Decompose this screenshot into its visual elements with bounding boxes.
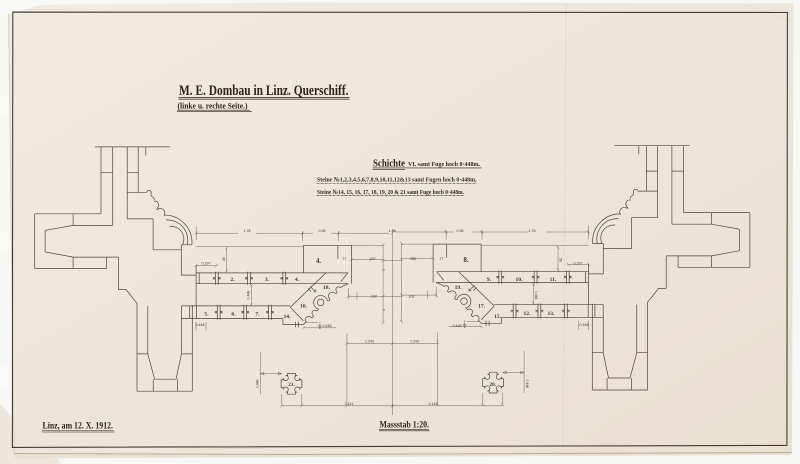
svg-text:1.243: 1.243 <box>365 339 374 343</box>
svg-text:7.: 7. <box>255 312 260 318</box>
svg-text:2.: 2. <box>230 277 235 283</box>
svg-text:2.141: 2.141 <box>429 402 438 406</box>
svg-text:18.: 18. <box>323 285 331 291</box>
svg-text:.102: .102 <box>369 257 376 261</box>
svg-text:1.243: 1.243 <box>410 339 419 343</box>
svg-text:.77: .77 <box>439 257 444 261</box>
svg-text:VI. samt Fuge hoch 0·448m.: VI. samt Fuge hoch 0·448m. <box>408 161 480 168</box>
svg-text:.56: .56 <box>559 257 563 262</box>
svg-text:14.: 14. <box>284 314 292 320</box>
svg-text:.56: .56 <box>222 257 226 262</box>
svg-text:4: 4 <box>382 309 386 311</box>
svg-text:0.448: 0.448 <box>196 323 205 327</box>
svg-text:15.: 15. <box>494 314 502 320</box>
svg-text:Linz, am 12. X. 1912.: Linz, am 12. X. 1912. <box>43 422 114 432</box>
svg-text:Steine №14, 15, 16, 17, 18, 19: Steine №14, 15, 16, 17, 18, 19, 20 & 21 … <box>317 189 464 196</box>
svg-text:Steine №1,2,3,4,5,6,7,8,9,10,1: Steine №1,2,3,4,5,6,7,8,9,10,11,12&13 sa… <box>317 177 477 184</box>
svg-text:17.: 17. <box>478 304 486 310</box>
svg-text:.77: .77 <box>342 257 347 261</box>
svg-text:19.: 19. <box>455 285 463 291</box>
svg-text:12.: 12. <box>524 311 532 317</box>
svg-text:20.: 20. <box>490 382 497 388</box>
svg-text:0.448: 0.448 <box>256 379 260 388</box>
svg-text:0.448: 0.448 <box>323 324 332 328</box>
svg-text:13.: 13. <box>548 311 556 317</box>
svg-text:10.: 10. <box>516 277 524 283</box>
svg-text:M. E. Dombau in Linz. Querschi: M. E. Dombau in Linz. Querschiff. <box>179 83 349 99</box>
svg-text:5.: 5. <box>204 312 209 318</box>
svg-text:.102: .102 <box>408 295 415 299</box>
svg-text:0.448: 0.448 <box>580 323 589 327</box>
svg-text:5: 5 <box>382 269 386 271</box>
svg-text:9.: 9. <box>487 277 492 283</box>
svg-text:3.: 3. <box>265 277 270 283</box>
svg-text:6.: 6. <box>231 312 236 318</box>
svg-text:1.76: 1.76 <box>529 229 536 233</box>
svg-text:0.448: 0.448 <box>534 291 538 300</box>
svg-text:0.448: 0.448 <box>525 380 529 389</box>
svg-text:0.448: 0.448 <box>453 324 462 328</box>
svg-text:0.98: 0.98 <box>457 229 464 233</box>
svg-text:21.: 21. <box>288 382 295 388</box>
svg-text:2.141: 2.141 <box>345 402 354 406</box>
svg-text:.102: .102 <box>409 257 416 261</box>
svg-text:4.: 4. <box>316 258 321 265</box>
svg-text:4.: 4. <box>295 277 300 283</box>
svg-text:0.297: 0.297 <box>574 262 583 266</box>
svg-text:11.: 11. <box>550 277 557 283</box>
svg-text:16.: 16. <box>300 304 308 310</box>
svg-text:1.76: 1.76 <box>244 229 251 233</box>
svg-text:(linke u. rechte Seite.): (linke u. rechte Seite.) <box>178 101 248 110</box>
svg-text:0.297: 0.297 <box>202 262 211 266</box>
svg-text:1.96: 1.96 <box>389 229 396 233</box>
svg-text:8.: 8. <box>463 257 468 264</box>
svg-text:.102: .102 <box>370 295 377 299</box>
svg-text:0.448: 0.448 <box>247 291 251 300</box>
svg-text:0.98: 0.98 <box>319 229 326 233</box>
